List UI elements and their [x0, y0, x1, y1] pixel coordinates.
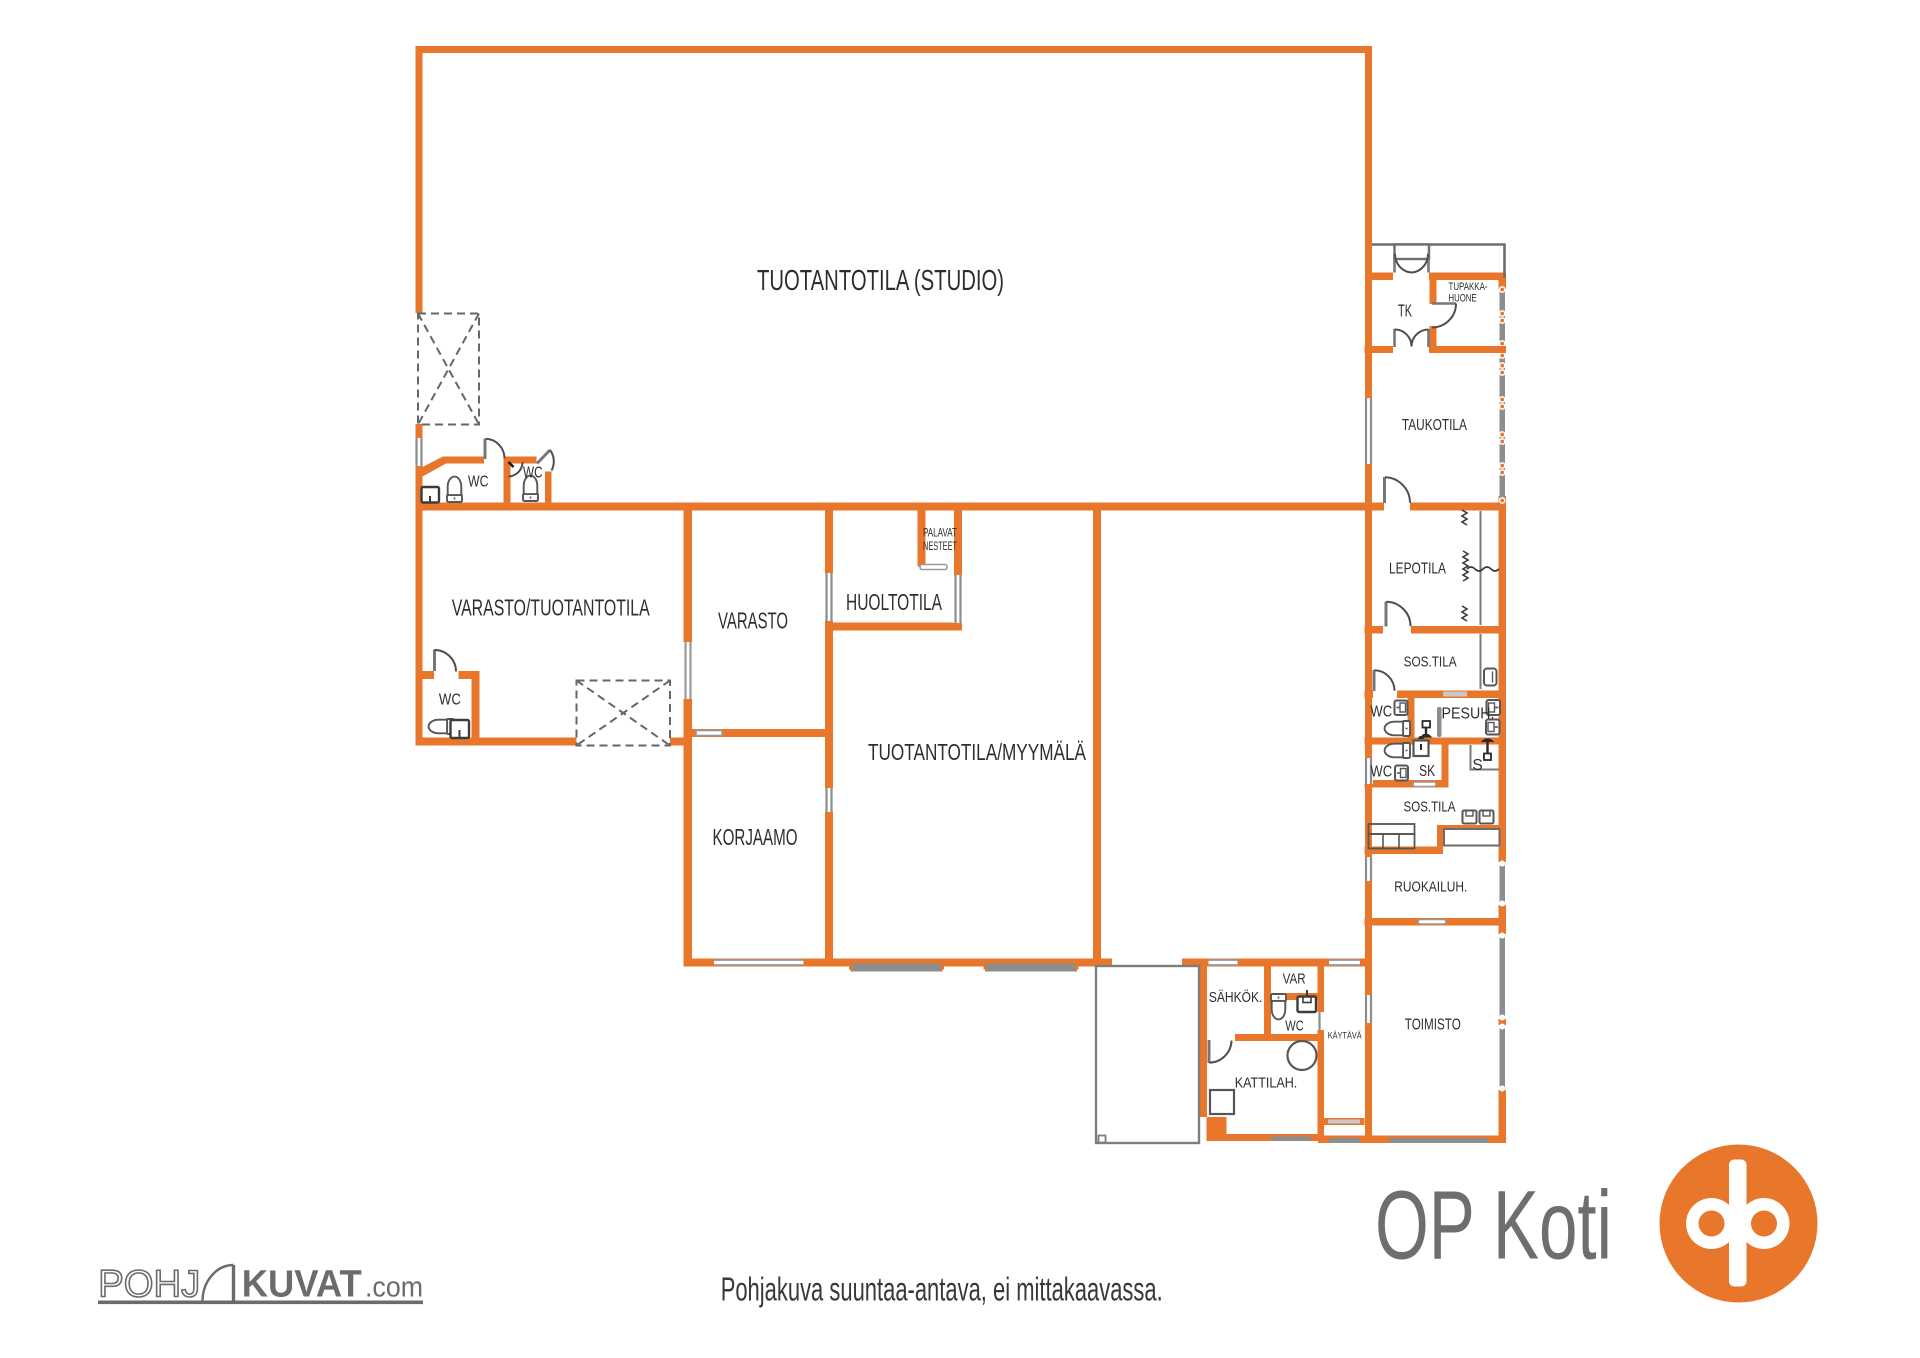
- svg-text:PESUH.: PESUH.: [1442, 706, 1495, 723]
- svg-text:VARASTO/TUOTANTOTILA: VARASTO/TUOTANTOTILA: [452, 595, 650, 621]
- svg-text:TUPAKKA-: TUPAKKA-: [1449, 281, 1488, 293]
- svg-text:WC: WC: [1285, 1018, 1303, 1034]
- svg-text:WC: WC: [523, 464, 543, 481]
- svg-text:PALAVAT: PALAVAT: [923, 526, 957, 540]
- svg-text:SOS.TILA: SOS.TILA: [1404, 653, 1457, 670]
- svg-text:Pohjakuva suuntaa-antava, ei m: Pohjakuva suuntaa-antava, ei mittakaavas…: [721, 1271, 1163, 1308]
- svg-text:HUONE: HUONE: [1449, 293, 1477, 305]
- svg-text:KATTILAH.: KATTILAH.: [1235, 1076, 1298, 1092]
- svg-text:POHJ: POHJ: [98, 1264, 200, 1306]
- svg-text:TAUKOTILA: TAUKOTILA: [1402, 417, 1467, 434]
- svg-text:RUOKAILUH.: RUOKAILUH.: [1394, 879, 1467, 896]
- svg-text:NESTEET: NESTEET: [923, 539, 957, 553]
- svg-text:TK: TK: [1398, 301, 1412, 321]
- svg-text:LEPOTILA: LEPOTILA: [1389, 561, 1446, 578]
- svg-text:VARASTO: VARASTO: [718, 608, 788, 634]
- svg-text:OP Koti: OP Koti: [1375, 1171, 1612, 1280]
- svg-text:TUOTANTOTILA (STUDIO): TUOTANTOTILA (STUDIO): [757, 265, 1004, 297]
- svg-text:WC: WC: [1370, 764, 1392, 781]
- svg-text:KÄYTÄVÄ: KÄYTÄVÄ: [1328, 1031, 1363, 1042]
- svg-text:TOIMISTO: TOIMISTO: [1405, 1016, 1461, 1033]
- svg-text:KORJAAMO: KORJAAMO: [713, 824, 798, 850]
- svg-text:HUOLTOTILA: HUOLTOTILA: [846, 589, 942, 615]
- svg-text:WC: WC: [1370, 704, 1392, 721]
- svg-text:WC: WC: [439, 692, 461, 709]
- svg-text:SK: SK: [1419, 763, 1436, 780]
- svg-text:VAR: VAR: [1283, 971, 1306, 987]
- svg-text:.com: .com: [365, 1272, 423, 1304]
- svg-text:SÄHKÖK.: SÄHKÖK.: [1209, 988, 1263, 1006]
- svg-text:TUOTANTOTILA/MYYMÄLÄ: TUOTANTOTILA/MYYMÄLÄ: [868, 739, 1086, 765]
- svg-text:S: S: [1472, 757, 1482, 774]
- svg-text:WC: WC: [468, 474, 489, 491]
- svg-text:SOS.TILA: SOS.TILA: [1404, 799, 1456, 816]
- svg-text:KUVAT: KUVAT: [242, 1264, 362, 1306]
